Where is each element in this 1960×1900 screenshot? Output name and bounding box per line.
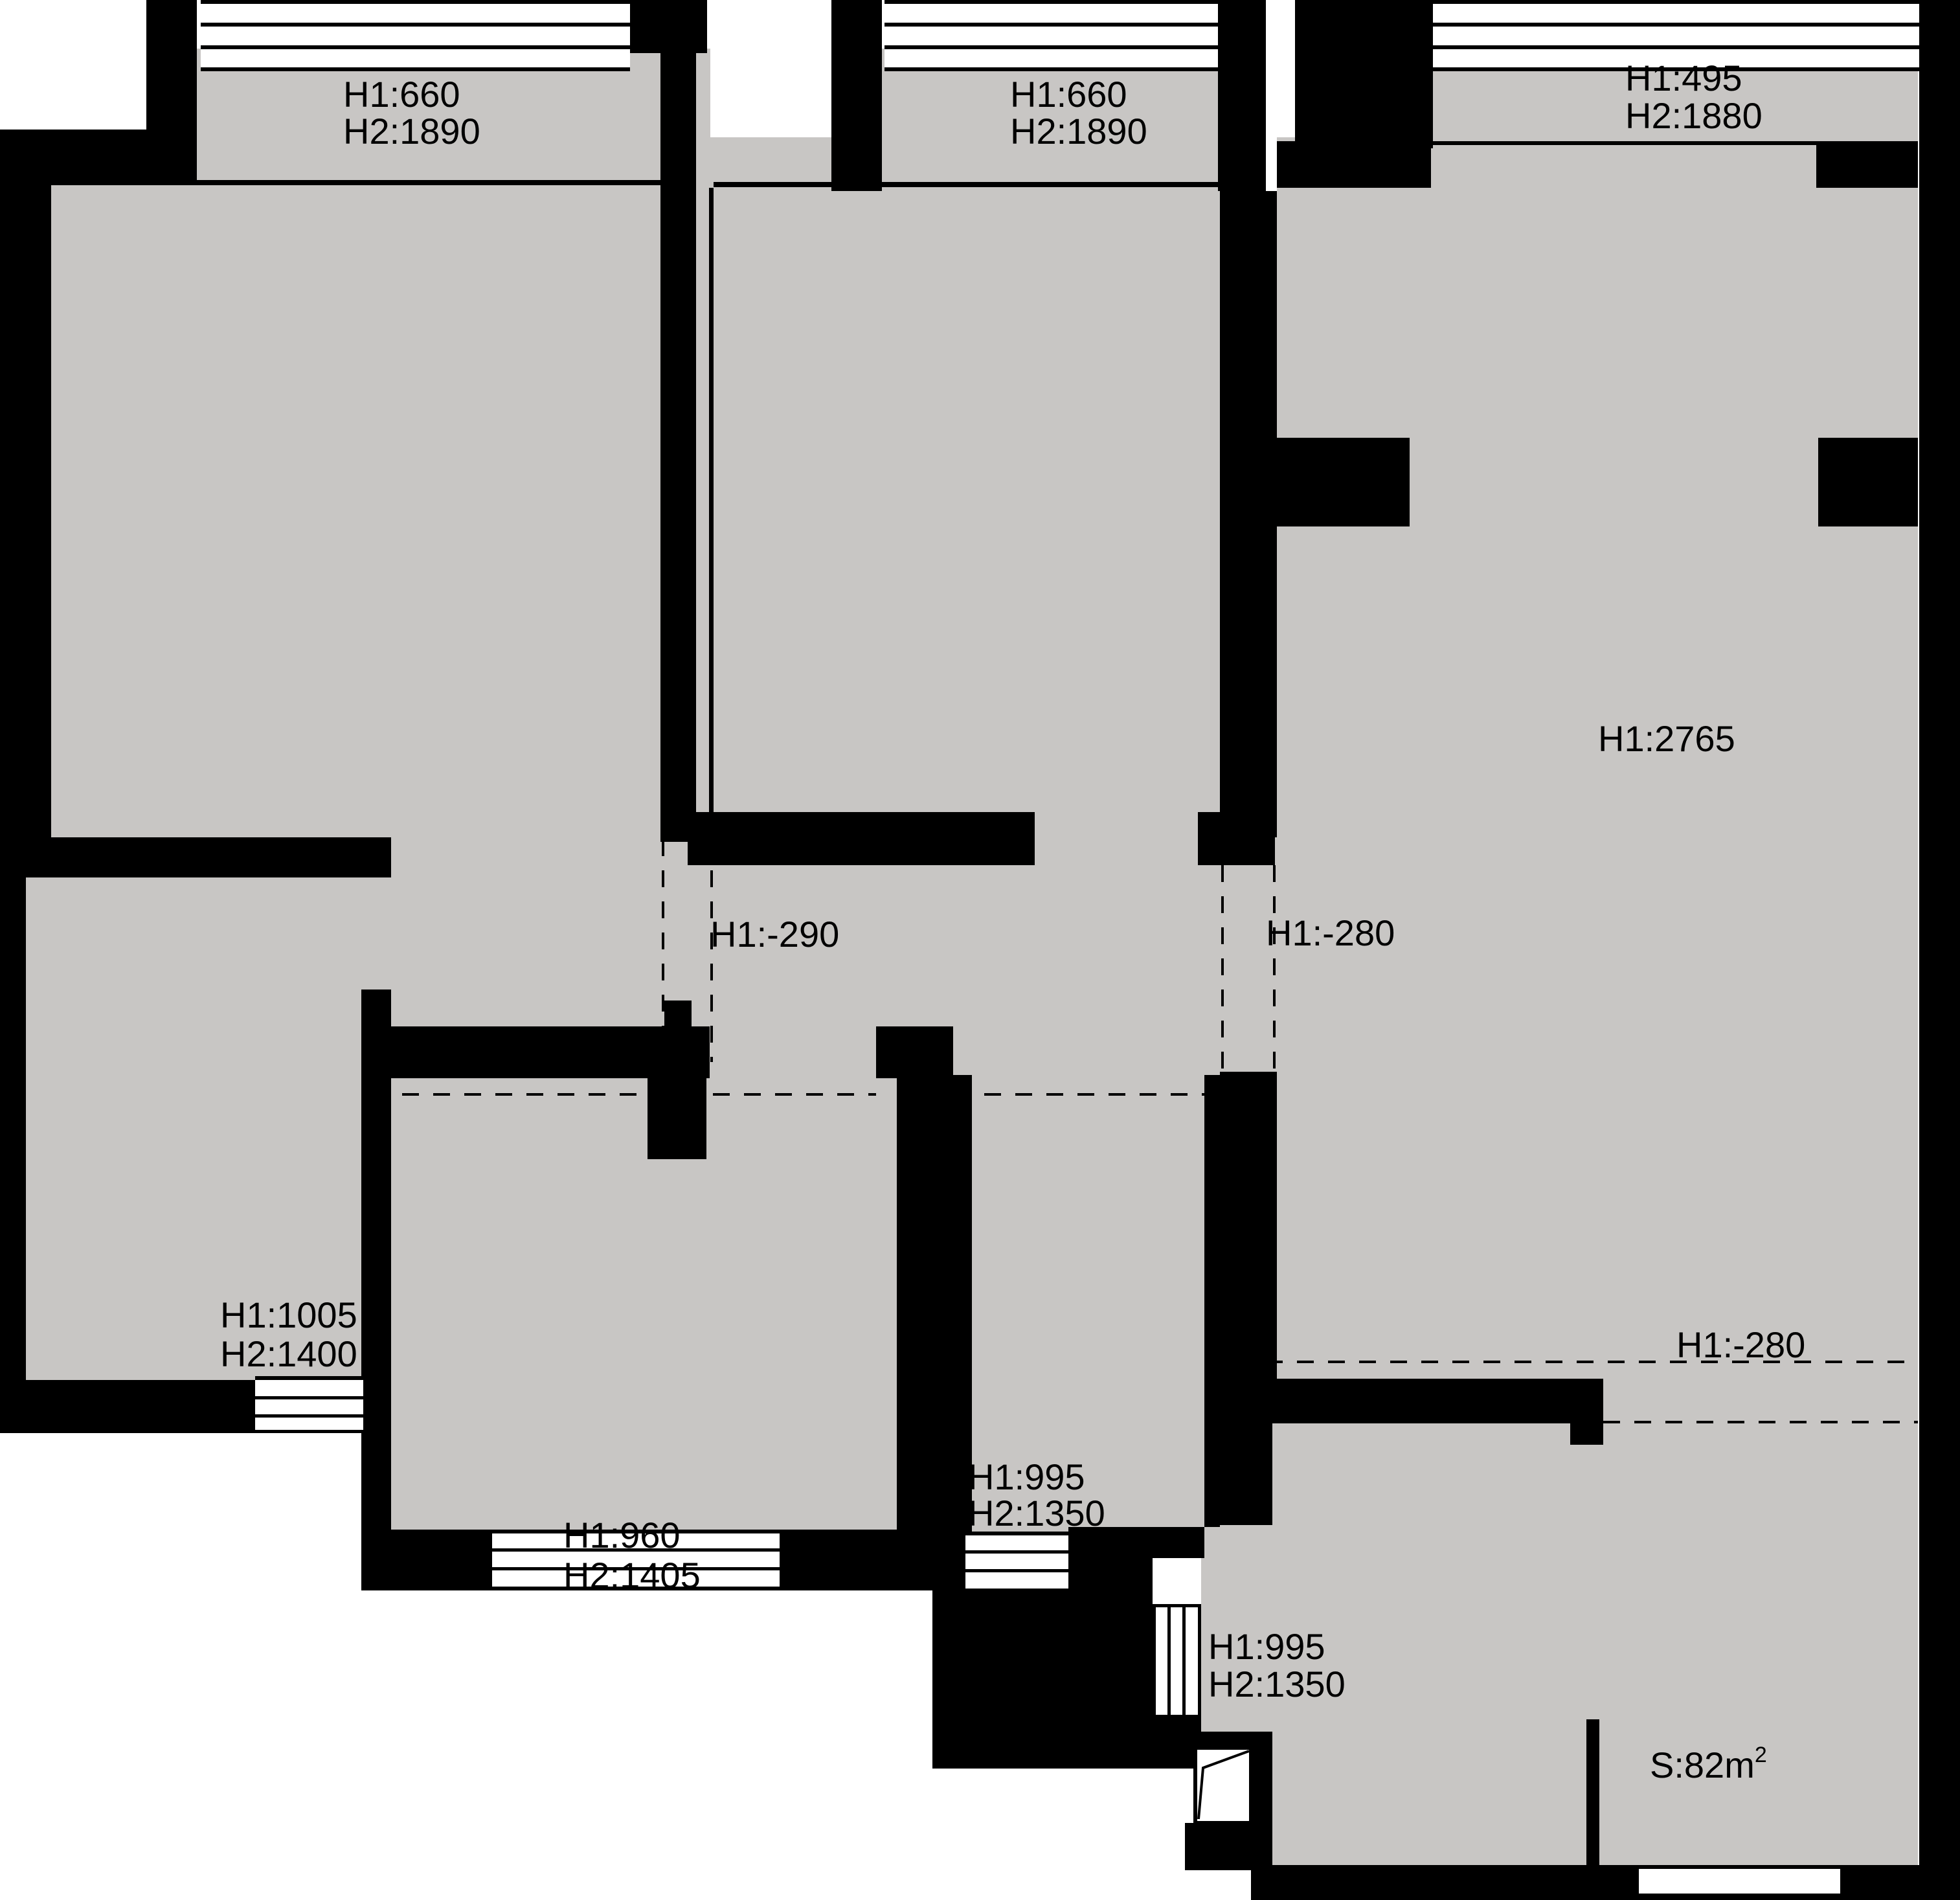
label-bathroom-h1: H1:995 [968,1456,1085,1497]
line-bay3-sill [1277,141,1918,145]
wall-door-right-jamb [1251,1748,1272,1823]
window-frame-line [884,23,1218,27]
label-bottom-middle-h1: H1:960 [563,1515,681,1555]
window-frame-line [201,67,630,71]
window-frame-line [255,1430,363,1433]
wall-balcony-top [1266,1379,1603,1423]
door-frame [1195,1748,1251,1823]
window-frame-line [255,1414,363,1418]
window-frame-line [965,1589,1068,1592]
wall-balcony-bottom [1251,1865,1960,1900]
label-total-area: S:82m2 [1650,1743,1767,1785]
wall-below-door [1185,1823,1272,1870]
line-room2-top-face [714,182,1220,187]
wall-room2-rightroom-upper [1220,191,1277,837]
wall-balcony-divider [1586,1719,1599,1870]
label-bathroom-h2: H2:1350 [968,1493,1105,1533]
window-balcony-side [1153,1604,1201,1718]
floor-plan-canvas: H1:660 H2:1890 H1:660 H2:1890 H1:495 H2:… [0,0,1960,1900]
label-bottom-middle-h2: H2:1405 [563,1555,701,1596]
label-balcony-window-h2: H2:1350 [1208,1664,1346,1704]
label-bay-top-right-h1: H1:495 [1625,58,1742,98]
wall-bay3-left-block [1295,0,1433,148]
wall-left-upper [0,180,51,877]
window-frame-line [965,1569,1068,1572]
wall-hall-stub [664,1001,692,1029]
window-frame-line [201,45,630,49]
label-bay-top-middle-h1: H1:660 [1010,74,1127,115]
window-top-middle [884,0,1218,71]
area-superscript: 2 [1755,1743,1767,1767]
cutout-notch-1 [710,0,831,137]
window-frame-line [255,1396,363,1399]
wall-room3-top-corner-block [648,1075,706,1159]
wall-stub-right-room-left [1277,438,1410,526]
wall-bay1-left-end [146,0,197,180]
window-frame-line [255,1376,363,1380]
wall-room1-bottom [0,837,391,877]
wall-window2-right [1218,0,1266,191]
cutout-notch-2 [1266,0,1295,137]
label-lower-left-h2: H2:1400 [220,1333,357,1374]
wall-stub-right-room-right [1818,438,1918,526]
wall-balcony-left [1204,1379,1272,1525]
label-bay-top-middle-h2: H2:1890 [1010,111,1147,152]
area-value: S:82m [1650,1745,1755,1785]
label-right-room-h1: H1:2765 [1598,718,1735,759]
label-hall-opening-right: H1:-280 [1266,912,1395,953]
label-balcony-opening: H1:-280 [1676,1324,1805,1365]
window-frame-line [1433,45,1919,49]
label-lower-left-h1: H1:1005 [220,1295,357,1335]
wall-room2-bottom-left [688,812,1035,865]
window-frame-line [1167,1604,1171,1718]
window-frame-line [1153,1715,1201,1718]
room-right-floor [1277,71,1918,1423]
label-bay-top-left-h1: H1:660 [343,74,460,115]
wall-left-lower [0,877,26,1433]
opening-track-line [1639,1894,1840,1897]
bathroom-floor [934,1026,1220,1532]
window-frame-line [884,45,1218,49]
wall-lowerleft-bottom [0,1380,255,1433]
window-bathroom [965,1532,1068,1592]
opening-balcony-bottom [1639,1869,1840,1897]
window-frame-line [1153,1604,1201,1607]
window-frame-line [884,0,1218,4]
wall-bay3-partial-left [1277,144,1431,188]
wall-room3-bottom-left [361,1530,492,1590]
wall-room3-top [361,1026,710,1078]
wall-balcony-top-step [1570,1423,1603,1445]
window-frame-line [1433,23,1919,27]
wall-room3-bathroom-shared [897,1075,972,1557]
window-top-left [201,0,630,71]
window-frame-line [1153,1604,1156,1718]
line-room1-top-face [51,180,660,185]
window-glass [255,1380,363,1433]
wall-notch1-right [831,0,882,191]
line-partition-thin [709,188,714,842]
room-top-left-floor [51,49,1220,845]
window-frame-line [201,0,630,4]
window-frame-line [201,23,630,27]
wall-entry-bathroom-stub [876,1026,953,1078]
window-glass [965,1532,1068,1592]
label-hall-opening-left: H1:-290 [710,914,839,955]
wall-partition-room1-room2 [660,53,696,842]
window-frame-line [1433,0,1919,4]
wall-right-exterior [1919,0,1960,1900]
window-glass [201,0,630,71]
window-glass [884,0,1218,71]
label-balcony-window-h1: H1:995 [1208,1626,1325,1667]
window-frame-line [965,1550,1068,1554]
label-bay-top-right-h2: H2:1880 [1625,95,1763,136]
label-bay-top-left-h2: H2:1890 [343,111,480,152]
wall-room2-rightroom-lower [1220,1072,1277,1423]
door-balcony [1195,1748,1251,1823]
window-frame-line [884,67,1218,71]
window-frame-line [1198,1604,1201,1718]
window-glass [1153,1604,1201,1718]
wall-room3-bottom-right [780,1530,934,1590]
wall-bay3-partial-right [1816,144,1918,188]
window-lower-left [255,1376,363,1433]
wall-bay1-right-end [630,0,707,53]
window-frame-line [1182,1604,1186,1718]
opening-gap [1639,1869,1840,1896]
floor-plan-page: H1:660 H2:1890 H1:660 H2:1890 H1:495 H2:… [0,0,1960,1900]
